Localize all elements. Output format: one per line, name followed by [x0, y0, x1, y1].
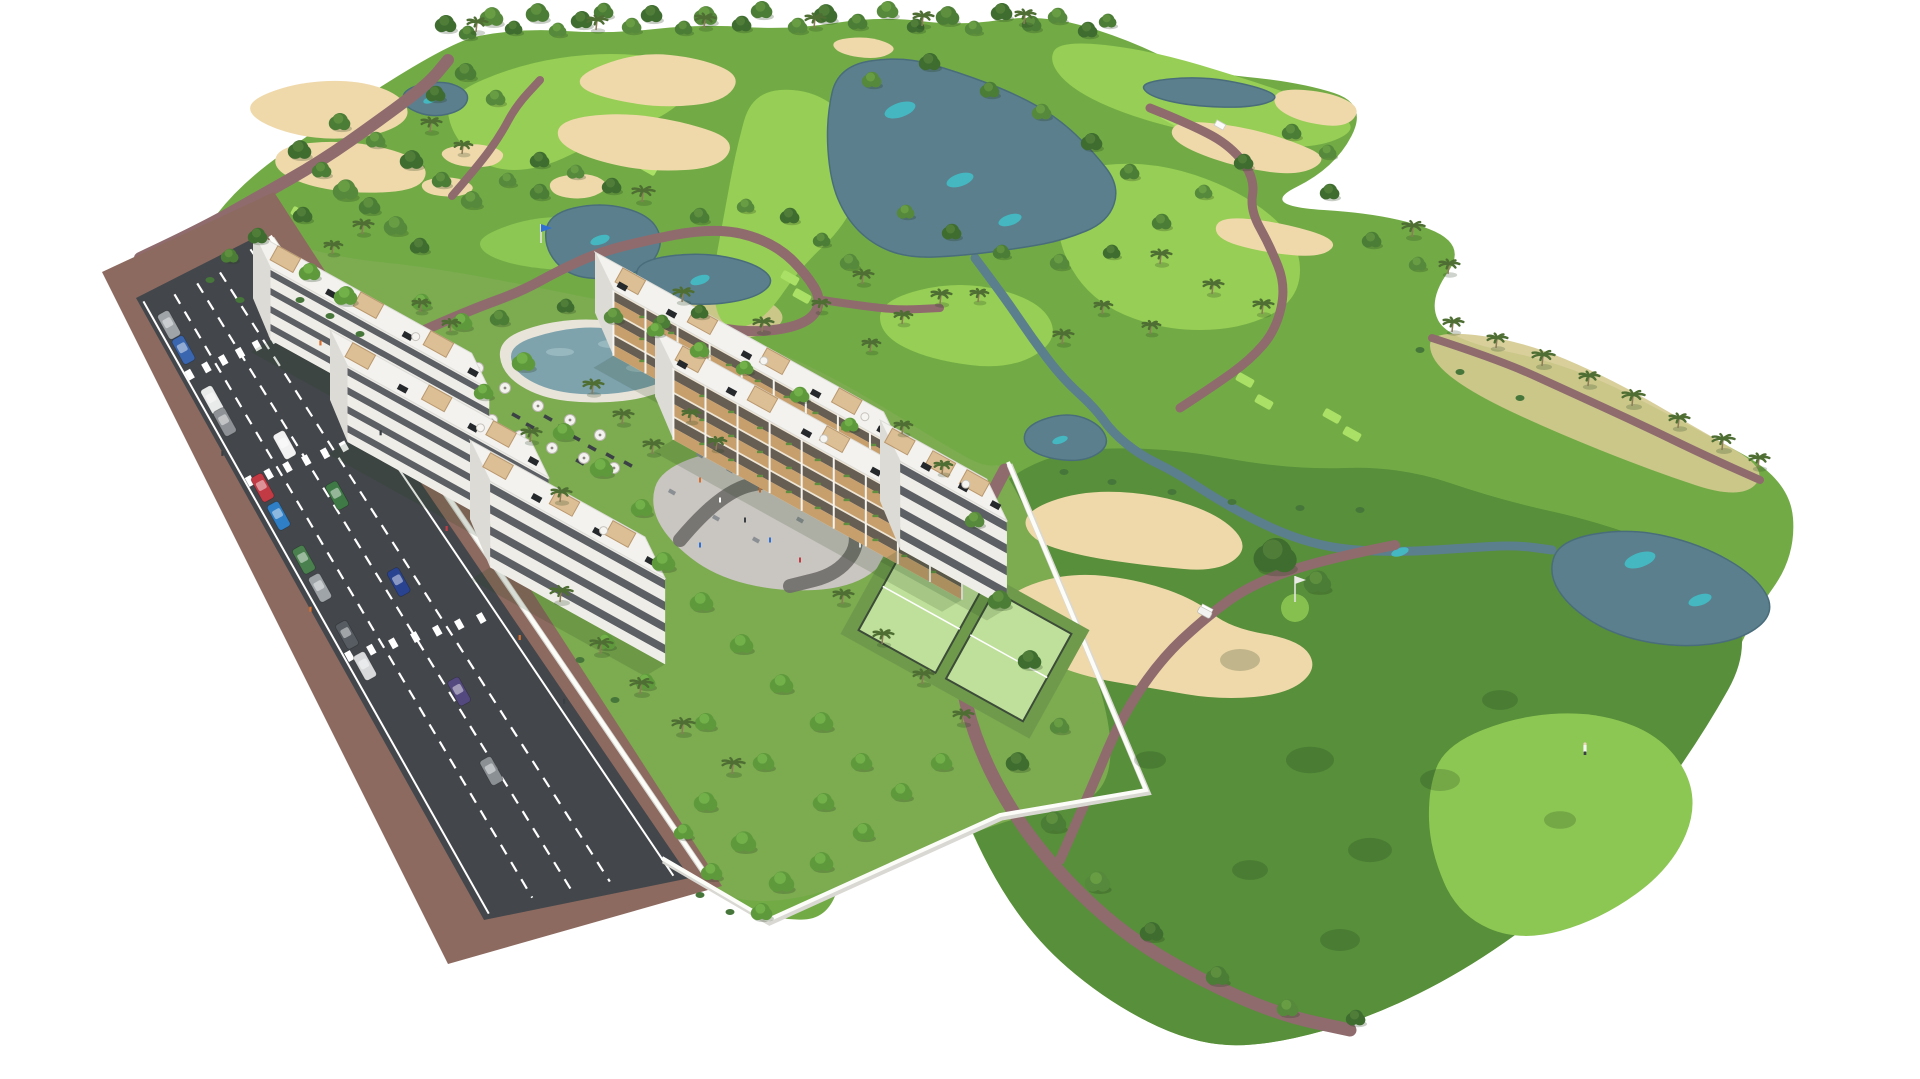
deciduous-tree [641, 5, 664, 24]
crosswalk-stripe [369, 645, 374, 654]
deciduous-tree [751, 1, 774, 20]
pedestrian [519, 635, 521, 640]
pedestrian [380, 430, 382, 435]
bush [1356, 507, 1365, 513]
bush [1108, 479, 1117, 485]
deciduous-tree [505, 21, 524, 37]
bush [356, 331, 365, 337]
deciduous-tree [549, 23, 568, 39]
rendering-canvas [0, 0, 1920, 1079]
crosswalk-stripe [457, 620, 462, 629]
bush [1456, 369, 1465, 375]
pedestrian [309, 607, 311, 612]
bush [1416, 347, 1425, 353]
roof-parasol [861, 413, 869, 421]
golf-resort-rendering [0, 0, 1920, 1079]
crosswalk-stripe [266, 470, 271, 479]
crosswalk-stripe [285, 463, 290, 472]
pedestrian [446, 526, 448, 531]
deciduous-tree [1078, 22, 1099, 39]
crosswalk-stripe [204, 363, 209, 372]
crosswalk-stripe [391, 639, 396, 648]
deciduous-tree [848, 14, 869, 31]
crosswalk-stripe [413, 633, 418, 642]
bush [1228, 499, 1237, 505]
crosswalk-stripe [187, 370, 192, 379]
deciduous-tree [675, 21, 694, 37]
deciduous-tree [435, 15, 458, 34]
crosswalk-stripe [479, 614, 484, 623]
deciduous-tree [1099, 14, 1118, 30]
crosswalk-stripe [304, 456, 309, 465]
deciduous-tree [1048, 8, 1069, 25]
pedestrian [319, 340, 321, 345]
roof-parasol [962, 480, 970, 488]
bush [1516, 395, 1525, 401]
roof-parasol [476, 424, 484, 432]
person [799, 558, 801, 563]
bush [726, 909, 735, 915]
person [769, 538, 771, 543]
roof-parasol [600, 527, 608, 535]
person [719, 498, 721, 503]
deciduous-tree [936, 6, 961, 27]
roof-parasol [760, 357, 768, 365]
bush [1060, 469, 1069, 475]
deciduous-tree [1320, 184, 1341, 201]
deciduous-tree [622, 18, 643, 35]
crosswalk-stripe [221, 356, 226, 365]
bush [206, 277, 215, 283]
bush [1168, 489, 1177, 495]
bush [326, 313, 335, 319]
person [699, 543, 701, 548]
bush [696, 892, 705, 898]
deciduous-tree [991, 3, 1014, 22]
bush [1296, 505, 1305, 511]
bush [236, 297, 245, 303]
crosswalk-stripe [323, 449, 328, 458]
bush [296, 297, 305, 303]
bush [576, 657, 585, 663]
crosswalk-stripe [347, 652, 352, 661]
deciduous-tree [526, 3, 551, 24]
roof-parasol [412, 333, 420, 341]
crosswalk-stripe [435, 626, 440, 635]
person [699, 478, 701, 483]
deciduous-tree [732, 16, 753, 33]
person [744, 518, 746, 523]
bush [611, 697, 620, 703]
crosswalk-stripe [238, 348, 243, 357]
pedestrian [563, 699, 565, 704]
pedestrian [221, 451, 223, 456]
roof-parasol [820, 435, 828, 443]
deciduous-tree [877, 1, 900, 20]
